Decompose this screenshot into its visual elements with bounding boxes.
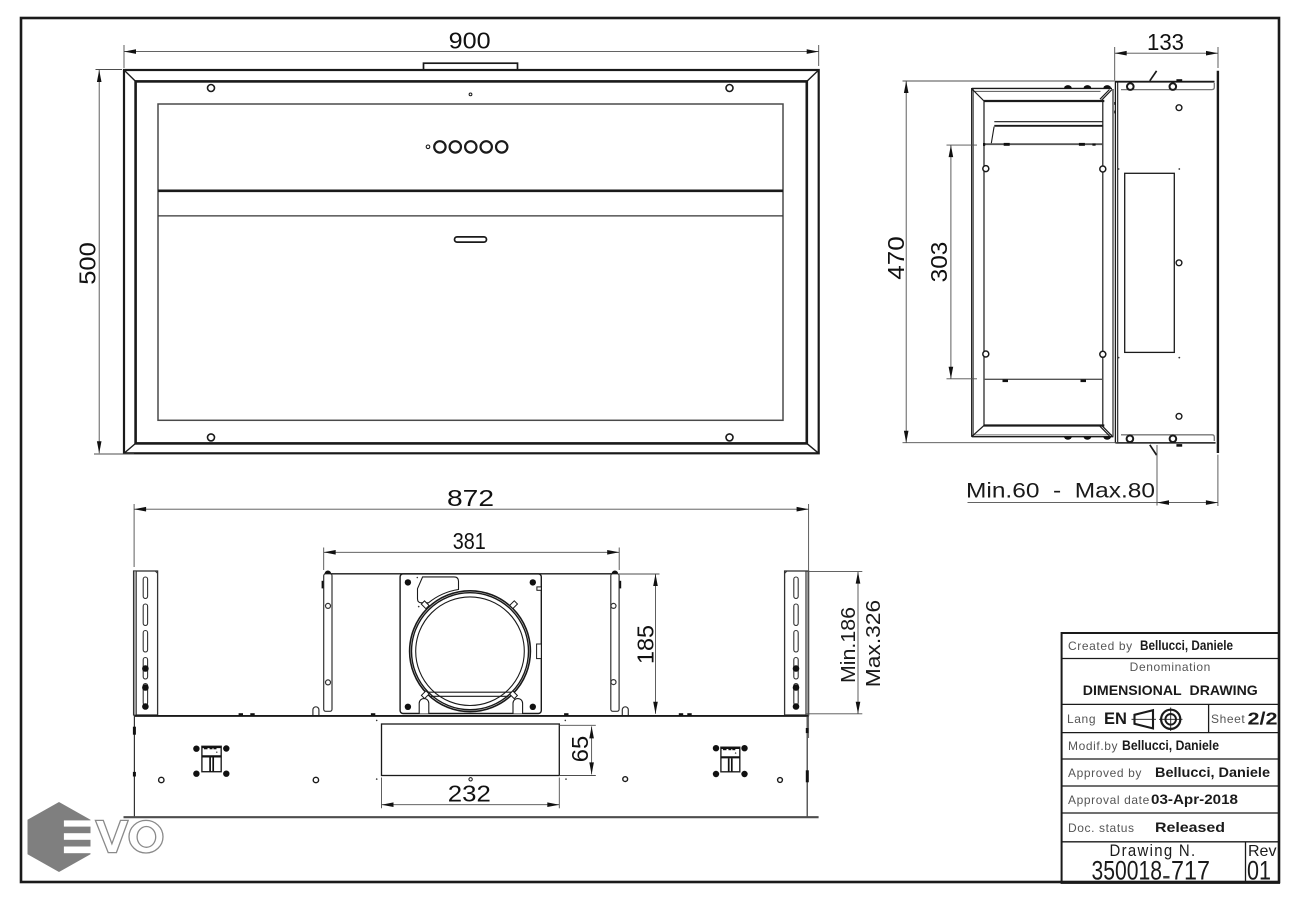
svg-text:Sheet: Sheet — [1211, 712, 1245, 726]
svg-text:232: 232 — [448, 781, 491, 807]
svg-text:01: 01 — [1247, 856, 1271, 886]
svg-text:Min.60 - Max.80: Min.60 - Max.80 — [966, 480, 1155, 503]
svg-text:Released: Released — [1155, 819, 1225, 835]
svg-text:Approval date: Approval date — [1068, 793, 1150, 807]
svg-text:Modif.by: Modif.by — [1068, 739, 1118, 753]
svg-text:Max.326: Max.326 — [862, 600, 885, 688]
svg-text:DIMENSIONAL DRAWING: DIMENSIONAL DRAWING — [1083, 682, 1258, 698]
svg-text:500: 500 — [74, 242, 100, 285]
svg-text:133: 133 — [1147, 29, 1184, 55]
svg-text:65: 65 — [567, 736, 593, 762]
svg-text:717: 717 — [1171, 856, 1210, 886]
svg-text:Created by: Created by — [1068, 639, 1133, 653]
svg-text:Bellucci, Daniele: Bellucci, Daniele — [1155, 764, 1270, 780]
svg-text:900: 900 — [449, 27, 491, 53]
svg-text:Approved by: Approved by — [1068, 766, 1142, 780]
svg-text:Denomination: Denomination — [1130, 660, 1211, 674]
svg-text:Lang: Lang — [1067, 712, 1096, 726]
svg-text:303: 303 — [926, 242, 952, 283]
svg-text:Min.186: Min.186 — [837, 607, 860, 683]
svg-text:470: 470 — [883, 236, 909, 279]
svg-text:03-Apr-2018: 03-Apr-2018 — [1151, 791, 1238, 807]
svg-text:185: 185 — [632, 625, 658, 664]
svg-text:350018: 350018 — [1092, 856, 1163, 886]
svg-text:EN: EN — [1104, 710, 1127, 728]
svg-text:2/2: 2/2 — [1248, 709, 1278, 729]
svg-text:Doc. status: Doc. status — [1068, 821, 1135, 835]
svg-text:Bellucci, Daniele: Bellucci, Daniele — [1122, 737, 1219, 753]
svg-text:381: 381 — [453, 528, 486, 554]
svg-text:872: 872 — [447, 485, 494, 511]
svg-text:Bellucci, Daniele: Bellucci, Daniele — [1140, 637, 1233, 653]
